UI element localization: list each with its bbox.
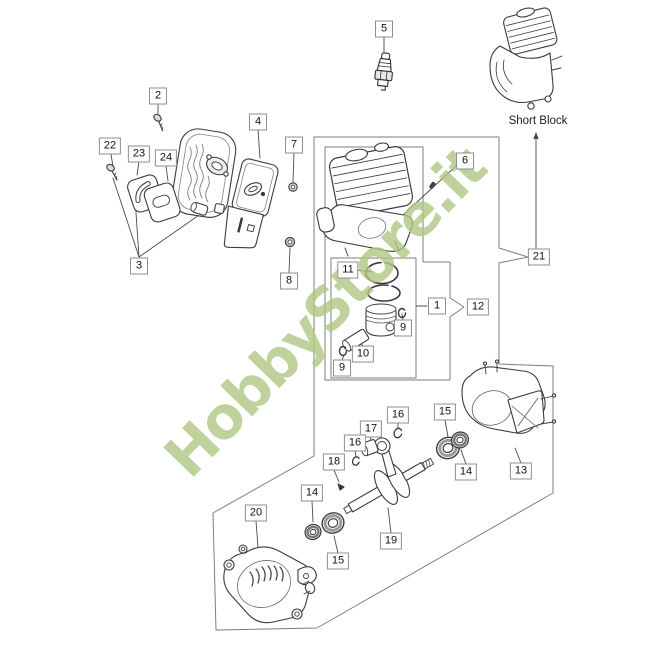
callout-line [166, 166, 168, 181]
callout-line [388, 508, 391, 533]
callout-label-9: 9 [333, 360, 351, 377]
callout-label-16: 16 [387, 407, 409, 424]
nut-7-icon [289, 183, 297, 191]
piston-illustration [366, 304, 396, 336]
callout-line [258, 130, 260, 158]
callout-line [461, 450, 466, 464]
callout-label-5: 5 [375, 21, 393, 38]
callout-label-2: 2 [149, 88, 167, 105]
callout-line [445, 420, 448, 437]
callout-line [289, 248, 290, 273]
callout-label-1: 1 [428, 298, 446, 315]
woodruff-key-18-icon [338, 484, 344, 490]
callout-label-7: 7 [285, 137, 303, 154]
circlip-9-left-icon [340, 347, 347, 356]
callout-label-14: 14 [455, 464, 477, 481]
circlip-16-left-icon [351, 456, 360, 466]
callout-label-23: 23 [128, 146, 150, 163]
crankcase-half-right-illustration [462, 360, 556, 433]
callout-label-21: 21 [528, 249, 550, 266]
callout-label-8: 8 [280, 273, 298, 290]
parts-diagram-page: HobbyStore.it Short Block 24222324378562… [0, 0, 650, 653]
callout-line [312, 501, 313, 522]
callout-label-10: 10 [352, 346, 374, 363]
callout-line [515, 448, 521, 463]
cylinder-illustration [316, 139, 436, 256]
piston-rings-illustration [366, 263, 400, 302]
screw-2-icon [150, 113, 169, 131]
callout-label-16: 16 [344, 435, 366, 452]
short-block-caption: Short Block [509, 115, 568, 127]
callout-line [357, 270, 373, 272]
callout-label-13: 13 [510, 463, 532, 480]
callout-label-12: 12 [467, 299, 489, 316]
bearing-15-left-icon [319, 510, 347, 537]
callout-line [137, 161, 139, 175]
washer-8-icon [285, 237, 294, 246]
callout-line [139, 213, 202, 257]
short-block-illustration [490, 3, 562, 109]
callout-label-22: 22 [99, 138, 121, 155]
short-block-arrowhead [533, 132, 538, 139]
callout-label-15: 15 [327, 553, 349, 570]
callout-label-15: 15 [434, 404, 456, 421]
callout-label-18: 18 [323, 454, 345, 471]
callout-label-11: 11 [337, 262, 358, 279]
callout-label-6: 6 [456, 153, 474, 170]
callout-label-19: 19 [380, 533, 402, 550]
callout-label-24: 24 [155, 150, 177, 167]
screw-22-icon [103, 163, 122, 180]
callout-label-14: 14 [301, 485, 323, 502]
callout-label-3: 3 [130, 258, 148, 275]
diagram-canvas [0, 0, 650, 653]
callout-label-4: 4 [249, 114, 267, 131]
crankcase-half-left-illustration [224, 545, 317, 623]
seal-14-left-icon [303, 522, 323, 542]
callout-line [256, 521, 258, 548]
spark-plug-illustration [374, 52, 395, 91]
callout-line [334, 470, 339, 482]
callout-line [293, 153, 294, 182]
callout-label-9: 9 [394, 320, 412, 337]
callout-line [334, 536, 338, 553]
callout-label-20: 20 [245, 505, 267, 522]
